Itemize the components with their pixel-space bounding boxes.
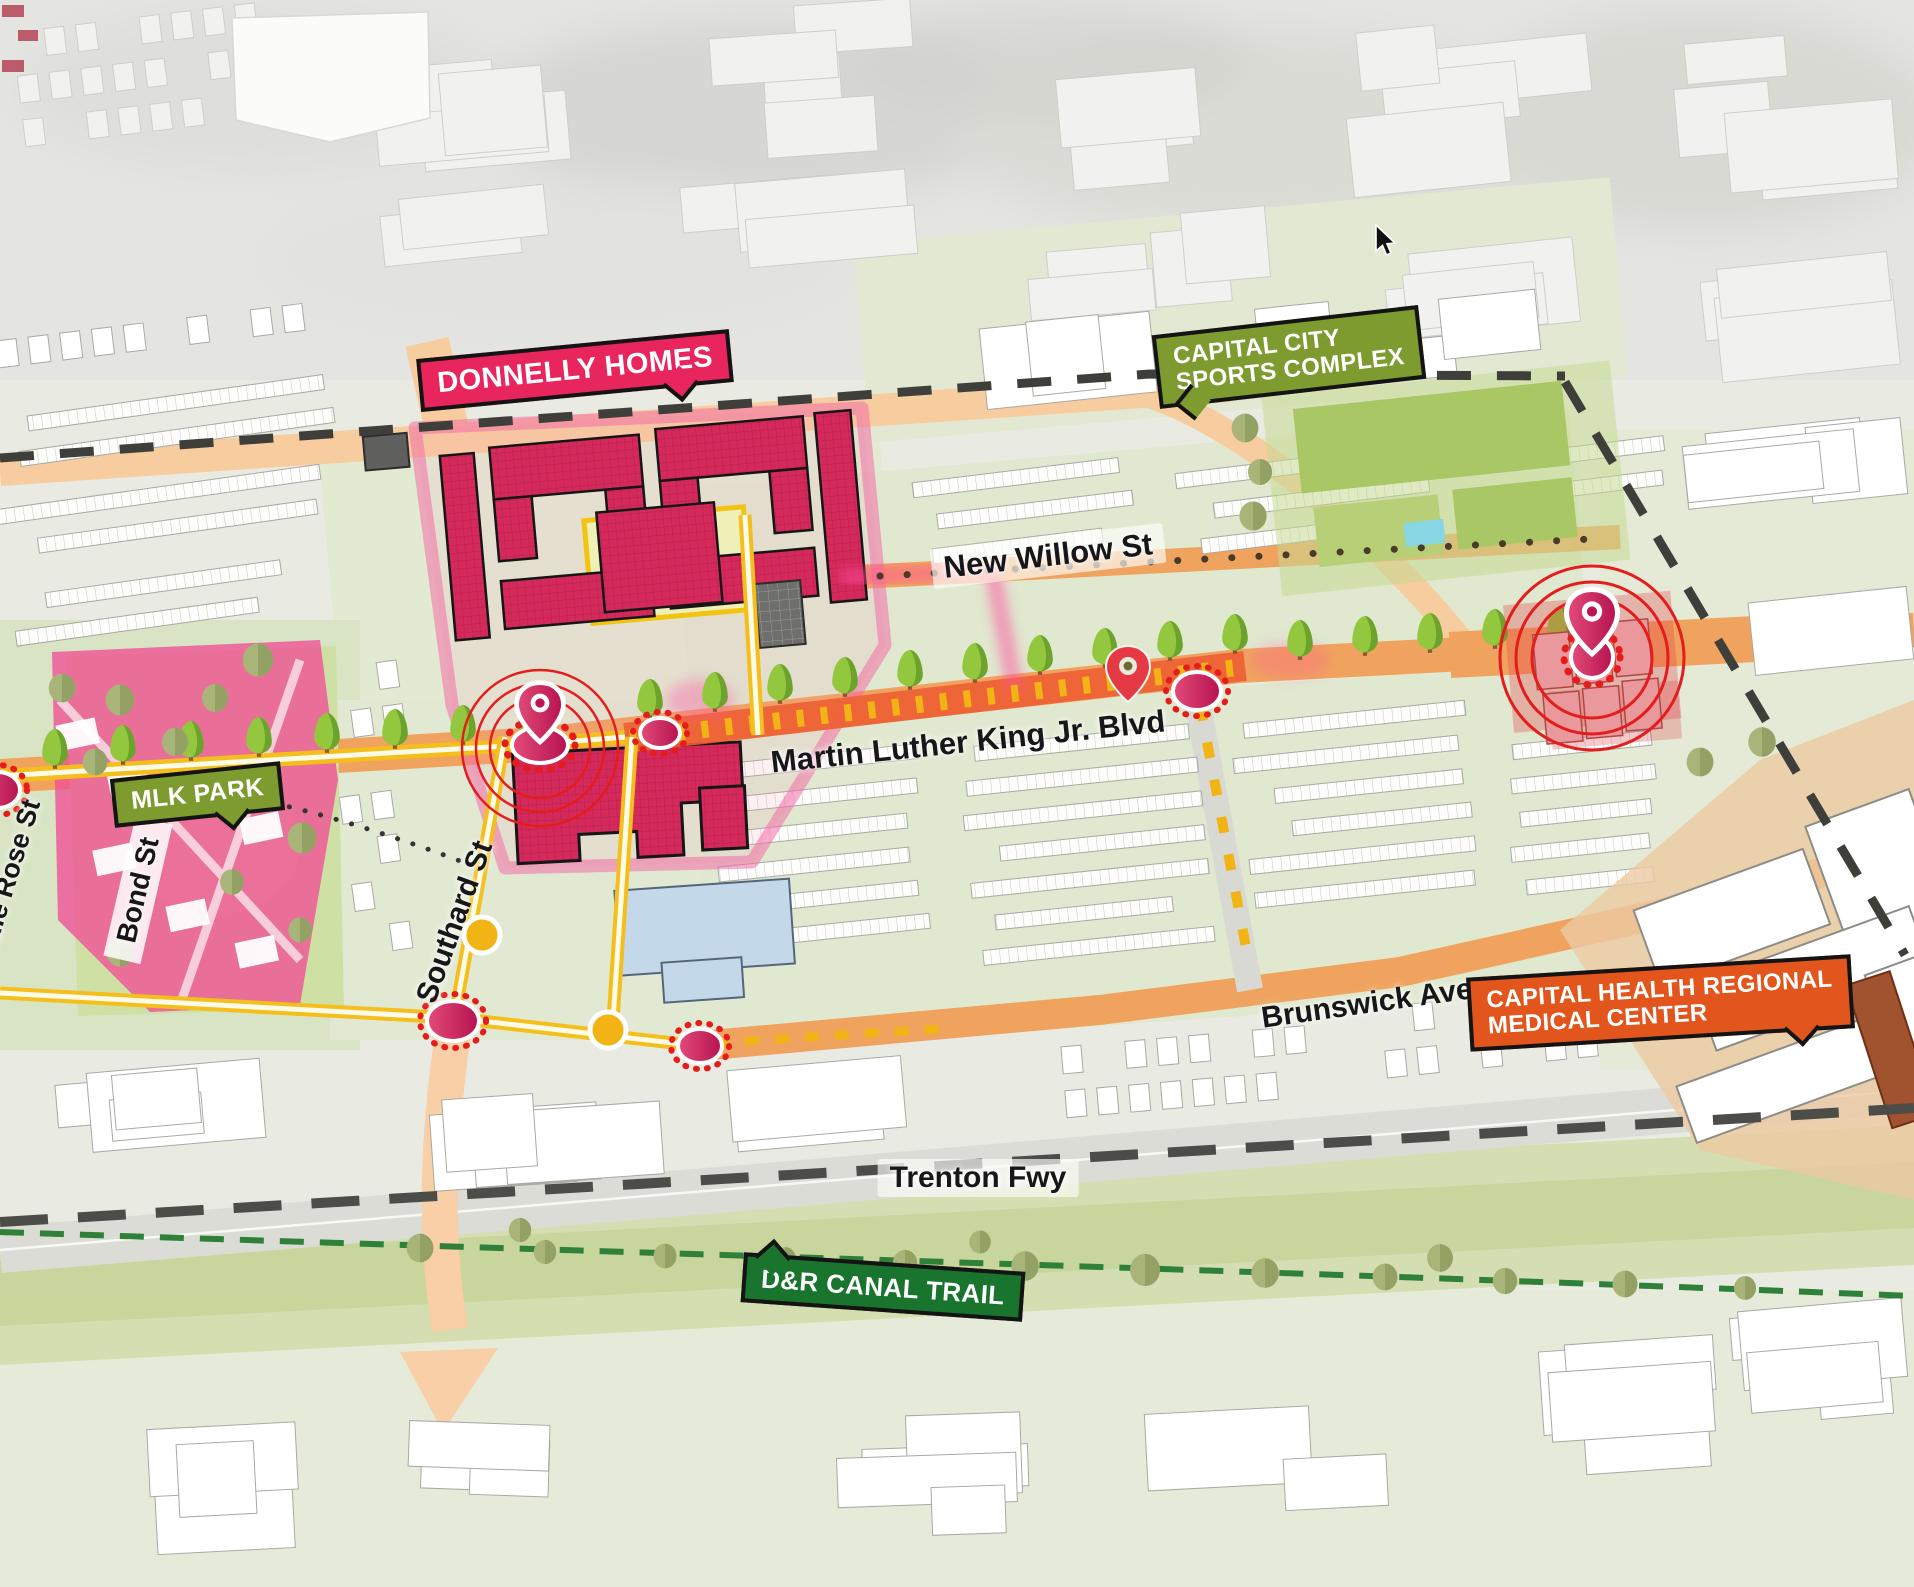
tree-icon xyxy=(162,728,188,756)
building xyxy=(727,1056,907,1142)
building xyxy=(1188,1034,1210,1063)
tree-icon xyxy=(1493,1268,1517,1294)
building xyxy=(1684,35,1787,84)
tree-icon xyxy=(509,1218,531,1242)
building xyxy=(339,795,363,825)
building xyxy=(1724,99,1898,193)
transit-node xyxy=(1166,666,1228,716)
city-block xyxy=(147,1422,302,1555)
building xyxy=(86,110,109,139)
building xyxy=(187,315,210,344)
building xyxy=(351,708,375,738)
tree-icon xyxy=(407,1234,434,1263)
building xyxy=(1346,102,1511,198)
plan-map: DONNELLY HOMES CAPITAL CITY SPORTS COMPL… xyxy=(0,0,1914,1587)
building xyxy=(208,50,231,79)
building xyxy=(282,303,305,332)
building xyxy=(1180,206,1270,284)
map-canvas xyxy=(0,0,1914,1587)
building xyxy=(123,323,146,352)
building xyxy=(1192,1078,1214,1107)
building xyxy=(764,95,878,158)
building xyxy=(111,1068,201,1130)
stop-node-yellow xyxy=(590,1012,626,1048)
tree-icon xyxy=(243,644,274,677)
city-block xyxy=(727,1056,908,1153)
tree-icon xyxy=(1239,501,1266,530)
tree-icon xyxy=(288,917,311,942)
building xyxy=(376,660,400,690)
building xyxy=(23,118,46,147)
building xyxy=(1157,1037,1179,1066)
building xyxy=(118,106,141,135)
city-block xyxy=(1729,1298,1911,1427)
tree-icon xyxy=(1687,748,1714,777)
building xyxy=(150,102,173,131)
building xyxy=(1283,1454,1388,1511)
city-block xyxy=(407,1421,550,1497)
tree-icon xyxy=(288,822,317,853)
building xyxy=(1256,1072,1278,1101)
building xyxy=(44,26,67,55)
tree-icon xyxy=(1251,1258,1278,1288)
building xyxy=(1548,1361,1715,1442)
building xyxy=(171,11,194,40)
building xyxy=(202,7,225,36)
building xyxy=(408,1421,550,1472)
tree-icon xyxy=(49,674,76,703)
tree-icon xyxy=(1232,414,1259,443)
tree-icon xyxy=(1748,727,1775,757)
building xyxy=(351,882,375,912)
building xyxy=(709,30,839,86)
building xyxy=(1747,1341,1884,1413)
mouse-cursor-icon xyxy=(1374,224,1400,258)
tree-icon xyxy=(654,1244,677,1269)
parking-structure xyxy=(754,580,805,648)
building xyxy=(28,335,51,364)
building xyxy=(1438,289,1541,359)
building xyxy=(81,66,104,95)
building xyxy=(91,327,114,356)
building xyxy=(176,1441,257,1518)
building xyxy=(139,15,162,44)
building xyxy=(250,307,273,336)
tree-icon xyxy=(106,685,135,716)
building xyxy=(1160,1081,1182,1110)
building xyxy=(49,70,72,99)
building xyxy=(931,1485,1006,1535)
building xyxy=(17,74,40,103)
building xyxy=(60,331,83,360)
building xyxy=(1224,1075,1246,1104)
tree-icon xyxy=(1373,1264,1398,1291)
building xyxy=(1125,1040,1147,1069)
tree-icon xyxy=(969,1231,990,1254)
gray-building xyxy=(363,433,410,471)
building xyxy=(442,1094,538,1173)
building xyxy=(1129,1083,1151,1112)
tree-icon xyxy=(202,684,228,712)
tree-icon xyxy=(1130,1254,1160,1286)
building xyxy=(1417,1046,1440,1075)
building xyxy=(75,22,98,51)
building xyxy=(1385,1049,1408,1078)
building xyxy=(181,98,204,127)
street-label-trenton-fwy: Trenton Fwy xyxy=(878,1159,1079,1197)
building xyxy=(0,339,19,368)
building xyxy=(1065,1089,1087,1118)
tree-icon xyxy=(534,1240,556,1264)
building xyxy=(389,921,413,951)
building xyxy=(438,65,547,156)
tree-icon xyxy=(1248,459,1272,485)
callout-label: D&R CANAL TRAIL xyxy=(760,1265,1005,1310)
building xyxy=(371,790,395,820)
tree-icon xyxy=(220,869,244,895)
building xyxy=(113,62,136,91)
building xyxy=(1356,25,1440,91)
tree-icon xyxy=(1427,1244,1453,1272)
building xyxy=(1061,1045,1083,1074)
tree-icon xyxy=(1734,1276,1756,1300)
building xyxy=(144,58,167,87)
building xyxy=(1055,68,1200,148)
tree-icon xyxy=(83,749,108,776)
tree-icon xyxy=(1613,1271,1638,1298)
large-building xyxy=(232,12,430,142)
building xyxy=(1097,1086,1119,1115)
city-block xyxy=(1699,251,1901,384)
